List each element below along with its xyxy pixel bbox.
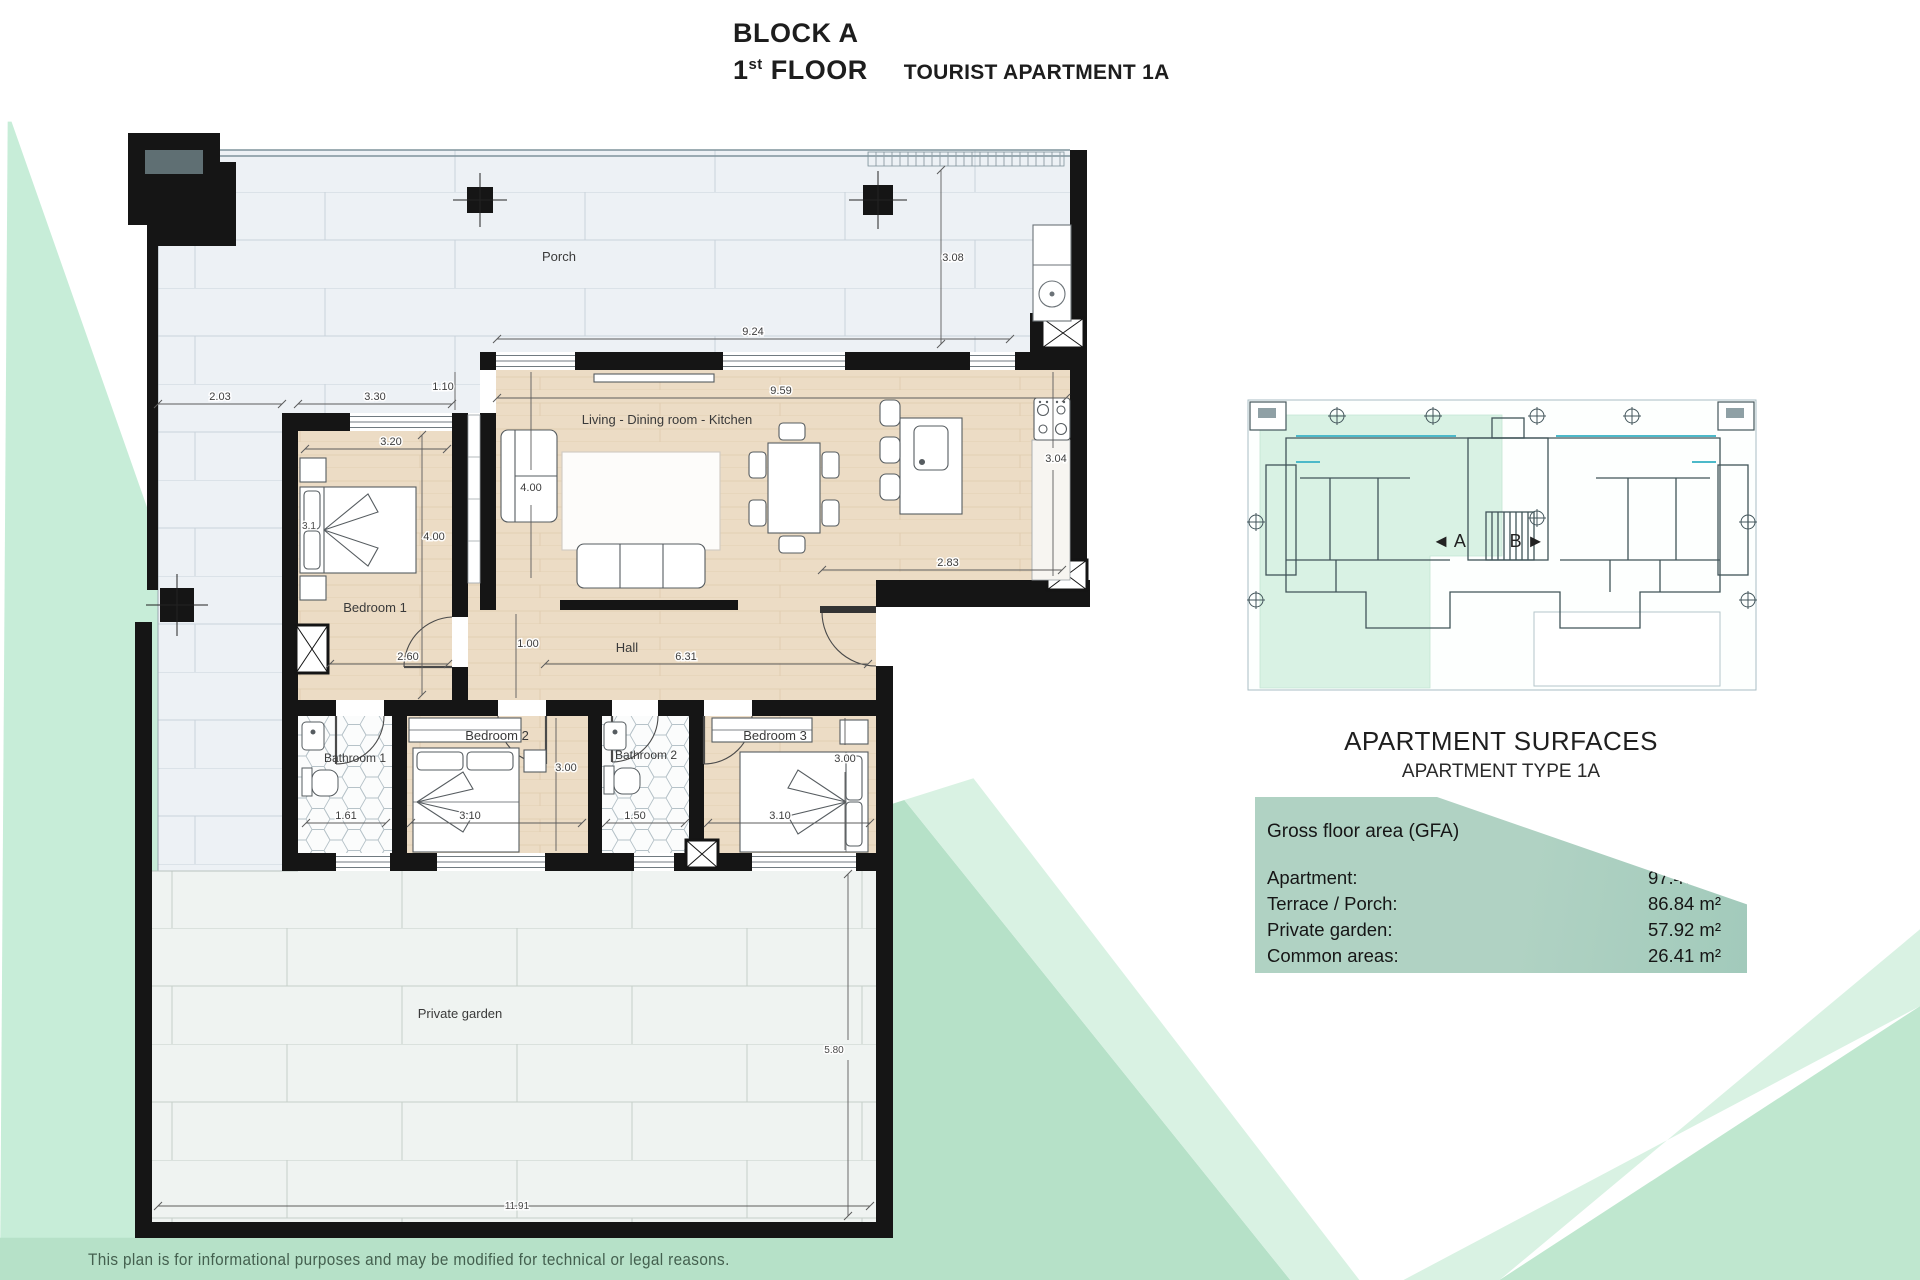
svg-text:1.50: 1.50: [624, 810, 645, 822]
disclaimer-text: This plan is for informational purposes …: [88, 1250, 730, 1270]
surface-row: Apartment: 97.47 m²: [1255, 865, 1747, 891]
surface-row: Private garden: 57.92 m²: [1255, 917, 1747, 943]
shaft-vent: [145, 150, 203, 174]
garden-label: Private garden: [418, 1006, 503, 1021]
svg-text:3.04: 3.04: [1045, 453, 1066, 465]
svg-text:5.80: 5.80: [824, 1045, 844, 1056]
nightstand: [300, 458, 326, 482]
nightstand: [524, 750, 546, 772]
living-label: Living - Dining room - Kitchen: [582, 412, 753, 427]
garden-floor: [152, 871, 876, 1222]
bathroom2-label: Bathroom 2: [615, 748, 677, 762]
svg-text:6.31: 6.31: [675, 651, 696, 663]
dining-table: [768, 443, 820, 533]
svg-text:3.00: 3.00: [834, 753, 855, 765]
svg-text:3.08: 3.08: [942, 252, 963, 264]
island-stool: [880, 474, 900, 500]
sofa-bottom: [577, 544, 705, 588]
svg-text:1.61: 1.61: [335, 810, 356, 822]
svg-text:1.10: 1.10: [432, 381, 453, 393]
surface-row: Common areas: 26.41 m²: [1255, 943, 1747, 969]
pillow: [417, 752, 463, 770]
gfa-header: Gross floor area (GFA): [1255, 797, 1747, 843]
svg-text:3.10: 3.10: [769, 810, 790, 822]
block-title: BLOCK A: [733, 18, 1170, 49]
nightstand: [300, 576, 326, 600]
bedroom1-label: Bedroom 1: [343, 600, 407, 615]
surfaces-section: APARTMENT SURFACES APARTMENT TYPE 1A Gro…: [1255, 726, 1747, 973]
bathroom1-label: Bathroom 1: [324, 751, 386, 765]
svg-text:4.00: 4.00: [423, 531, 444, 543]
hall-label: Hall: [616, 640, 639, 655]
pillow: [467, 752, 513, 770]
surface-label: Terrace / Porch:: [1267, 891, 1398, 917]
tv-board: [594, 374, 714, 382]
terrace-b: [1534, 612, 1720, 686]
surfaces-panel: Gross floor area (GFA) Apartment: 97.47 …: [1255, 797, 1747, 973]
closet-niche: [468, 415, 480, 583]
island-stool: [880, 400, 900, 426]
unit-a-label: ◄ A: [1432, 531, 1466, 551]
nightstand: [840, 720, 868, 744]
bedroom2-label: Bedroom 2: [465, 728, 529, 743]
svg-text:4.00: 4.00: [520, 482, 541, 494]
porch-label: Porch: [542, 249, 576, 264]
surface-value: 86.84 m²: [1648, 891, 1721, 917]
surface-label: Private garden:: [1267, 917, 1392, 943]
svg-text:9.24: 9.24: [742, 326, 763, 338]
entrance-door-leaf: [820, 606, 876, 613]
key-plan: ◄ A B ►: [1247, 400, 1757, 690]
bedroom3-label: Bedroom 3: [743, 728, 807, 743]
toilet: [312, 770, 338, 796]
surface-value: 26.41 m²: [1648, 943, 1721, 969]
svg-text:9.59: 9.59: [770, 385, 791, 397]
apartment-title: TOURIST APARTMENT 1A: [904, 61, 1170, 85]
toilet-tank: [604, 766, 614, 794]
toilet-tank: [302, 768, 312, 796]
unit-b-label: B ►: [1510, 531, 1545, 551]
stove: [1034, 398, 1070, 440]
svg-text:3.1: 3.1: [302, 521, 316, 532]
washbasin: [302, 722, 324, 750]
surface-value: 57.92 m²: [1648, 917, 1721, 943]
svg-text:2.83: 2.83: [937, 557, 958, 569]
toilet: [614, 768, 640, 794]
surfaces-title: APARTMENT SURFACES: [1255, 726, 1747, 757]
title-block: BLOCK A 1st FLOOR TOURIST APARTMENT 1A: [733, 18, 1170, 86]
svg-text:1.00: 1.00: [517, 638, 538, 650]
surfaces-subtitle: APARTMENT TYPE 1A: [1255, 761, 1747, 783]
surface-label: Common areas:: [1267, 943, 1399, 969]
svg-text:3.20: 3.20: [380, 436, 401, 448]
porch-counter: [1033, 225, 1071, 321]
island-stool: [880, 437, 900, 463]
svg-text:3.30: 3.30: [364, 391, 385, 403]
rug: [562, 452, 720, 550]
surface-label: Apartment:: [1267, 865, 1358, 891]
svg-text:11.91: 11.91: [505, 1201, 530, 1212]
floor-plan: Porch Living - Dining room - Kitchen Bed…: [0, 0, 1920, 1280]
surface-row: Terrace / Porch: 86.84 m²: [1255, 891, 1747, 917]
svg-text:2.03: 2.03: [209, 391, 230, 403]
washbasin: [604, 722, 626, 750]
svg-text:3.10: 3.10: [459, 810, 480, 822]
pillow: [304, 531, 320, 569]
island-sink: [914, 426, 948, 470]
svg-text:2.60: 2.60: [397, 651, 418, 663]
floor-title: 1st FLOOR: [733, 55, 868, 86]
pillow: [846, 802, 862, 846]
surface-value: 97.47 m²: [1648, 865, 1721, 891]
svg-text:3.00: 3.00: [555, 762, 576, 774]
pergola-hatch: [868, 152, 1064, 166]
